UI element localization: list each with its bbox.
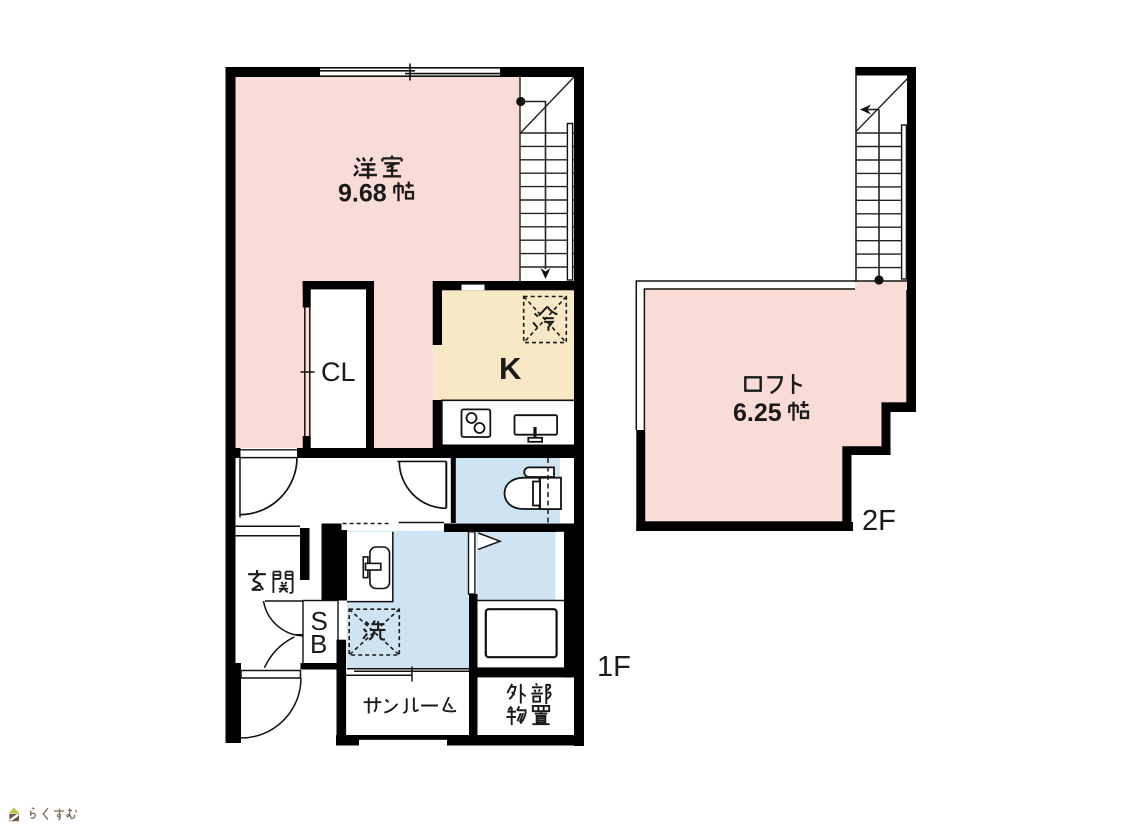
svg-text:9.68: 9.68 [338,180,387,208]
svg-text:K: K [499,351,522,386]
svg-text:CL: CL [321,357,356,387]
svg-text:2F: 2F [862,505,896,537]
svg-text:B: B [310,629,327,659]
svg-text:6.25: 6.25 [733,399,782,427]
svg-text:1F: 1F [597,651,631,683]
